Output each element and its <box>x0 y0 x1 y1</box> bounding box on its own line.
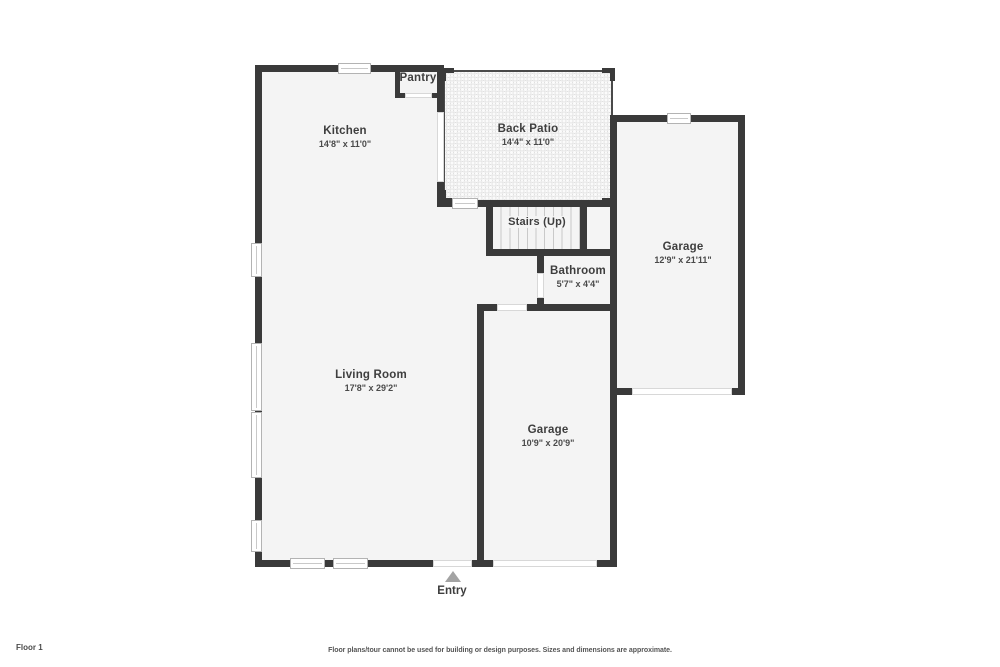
wall-living-garage <box>477 304 484 567</box>
floorplan-canvas: Kitchen 14'8" x 11'0" Back Patio 14'4" x… <box>0 0 1000 667</box>
room-label-living-room: Living Room <box>335 369 407 381</box>
window-left-living-c <box>251 520 262 552</box>
entry-label: Entry <box>437 585 466 597</box>
room-dims-garage-right: 12'9" x 21'11" <box>654 255 711 265</box>
window-kitchen-top <box>338 63 371 74</box>
room-label-garage-right: Garage <box>663 241 704 253</box>
room-dims-bathroom: 5'7" x 4'4" <box>557 279 600 289</box>
entry-door-opening <box>433 560 472 567</box>
back-patio-area <box>443 70 613 202</box>
wall-left-exterior <box>255 65 262 567</box>
patio-slider-door <box>437 112 444 182</box>
window-bottom-living-b <box>333 558 368 569</box>
room-dims-kitchen: 14'8" x 11'0" <box>319 139 371 149</box>
window-left-living-a <box>251 343 262 411</box>
wall-kitchen-patio-lower <box>437 182 444 207</box>
wall-center-vertical <box>610 115 617 567</box>
garage-door-right <box>632 388 732 395</box>
room-label-pantry: Pantry <box>400 72 437 84</box>
floor-number-label: Floor 1 <box>16 643 43 652</box>
stairs-treads <box>493 207 580 249</box>
room-label-kitchen: Kitchen <box>323 125 367 137</box>
window-patio-bottom <box>452 198 478 209</box>
wall-stairs-bottom <box>486 249 615 256</box>
room-label-back-patio: Back Patio <box>498 123 559 135</box>
room-dims-back-patio: 14'4" x 11'0" <box>502 137 554 147</box>
bathroom-door-opening <box>537 273 544 298</box>
room-label-garage-bottom: Garage <box>528 424 569 436</box>
room-label-bathroom: Bathroom <box>550 265 606 277</box>
room-dims-living-room: 17'8" x 29'2" <box>345 383 398 393</box>
entry-arrow-icon <box>445 571 461 582</box>
wall-stairs-right <box>580 207 587 256</box>
wall-kitchen-patio-upper <box>437 65 444 112</box>
garage-door-bottom <box>493 560 597 567</box>
room-label-stairs: Stairs (Up) <box>505 216 569 228</box>
patio-corner-mark <box>602 68 615 81</box>
wall-bathroom-left-upper <box>537 256 544 273</box>
wall-stairs-left <box>486 207 493 256</box>
wall-bathroom-left-lower <box>537 298 544 311</box>
pantry-door-opening <box>405 93 432 98</box>
wall-garage-right-exterior <box>738 115 745 395</box>
window-garage-top <box>667 113 691 124</box>
garage-interior-door-opening <box>497 304 527 311</box>
disclaimer-text: Floor plans/tour cannot be used for buil… <box>328 647 672 654</box>
room-dims-garage-bottom: 10'9" x 20'9" <box>522 438 575 448</box>
window-bottom-living-a <box>290 558 325 569</box>
window-left-living-b <box>251 412 262 478</box>
window-left-kitchen <box>251 243 262 277</box>
